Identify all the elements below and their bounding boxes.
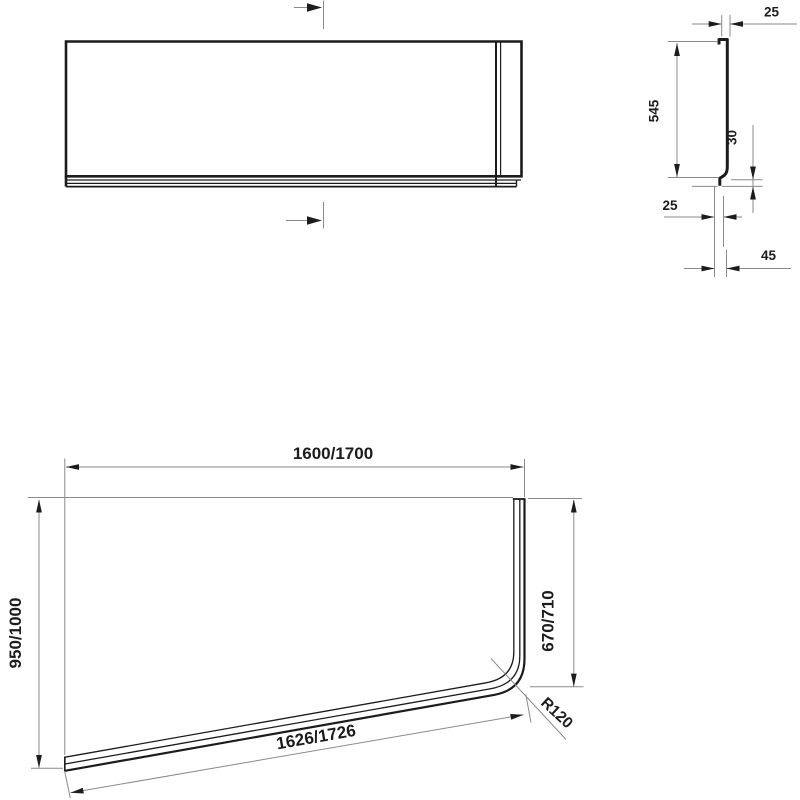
extension-line [715, 187, 727, 278]
section-cut-mark-top [294, 1, 324, 30]
arrowhead [511, 464, 524, 470]
extension-line [65, 459, 525, 756]
arrowhead [674, 164, 680, 177]
dim-profile-height: 545 [647, 42, 719, 178]
side-profile-view: 25 545 30 25 [647, 5, 798, 278]
section-cut-mark-bottom [286, 202, 324, 229]
extension-line [668, 42, 718, 178]
panel-face-outline [66, 42, 522, 177]
technical-drawing-canvas: 25 545 30 25 [0, 0, 800, 800]
extension-line [28, 498, 582, 499]
arrowhead [709, 21, 722, 27]
panel-outer-edge [65, 499, 525, 771]
dim-label-corner-radius: R120 [537, 694, 576, 732]
arrowhead [727, 266, 740, 272]
arrowhead [510, 714, 523, 720]
profile-section-outline [719, 40, 727, 186]
dim-plan-overall-depth: 950/1000 [6, 500, 63, 769]
dimension-line [71, 715, 524, 793]
arrowhead [571, 674, 577, 687]
arrowhead [750, 187, 756, 200]
dim-label-height: 545 [647, 99, 662, 122]
dim-plan-side-length: 670/710 [530, 500, 584, 687]
drawing-svg: 25 545 30 25 [0, 0, 800, 800]
arrowhead [702, 266, 715, 272]
dim-label-overall-width: 1600/1700 [293, 444, 373, 463]
arrowhead [71, 788, 84, 794]
front-elevation-view [66, 1, 522, 229]
dim-plan-overall-width: 1600/1700 [65, 444, 525, 755]
arrowhead [36, 755, 42, 768]
dim-plan-front-edge-length: 1626/1726 [65, 695, 531, 799]
arrowhead [702, 214, 715, 220]
dim-label-overall-depth: 950/1000 [6, 598, 25, 669]
arrowhead [66, 464, 79, 470]
dim-profile-top-width: 25 [692, 5, 797, 37]
dim-profile-foot-offset: 25 [662, 187, 742, 278]
dim-plan-corner-radius: R120 [491, 659, 576, 740]
dim-label-foot-offset: 25 [662, 198, 678, 213]
arrowhead [724, 214, 737, 220]
section-arrow-icon [307, 216, 322, 224]
panel-inner-edge [65, 499, 514, 757]
arrowhead [674, 43, 680, 56]
dim-label-top-width: 25 [764, 5, 780, 20]
extension-line [722, 15, 730, 37]
extension-line [692, 180, 763, 187]
arrowhead [571, 500, 577, 513]
dim-label-foot-depth: 45 [761, 248, 777, 263]
dim-profile-foot-depth: 45 [684, 248, 791, 271]
plan-view: 1600/1700 950/1000 670/710 1626/1726 [6, 444, 584, 798]
panel-middle-line [65, 499, 520, 764]
dim-label-side-length: 670/710 [539, 590, 558, 651]
arrowhead [36, 500, 42, 513]
arrowhead [750, 167, 756, 180]
section-arrow-icon [307, 3, 322, 11]
dim-label-foot-height: 30 [725, 130, 740, 145]
arrowhead [730, 21, 743, 27]
